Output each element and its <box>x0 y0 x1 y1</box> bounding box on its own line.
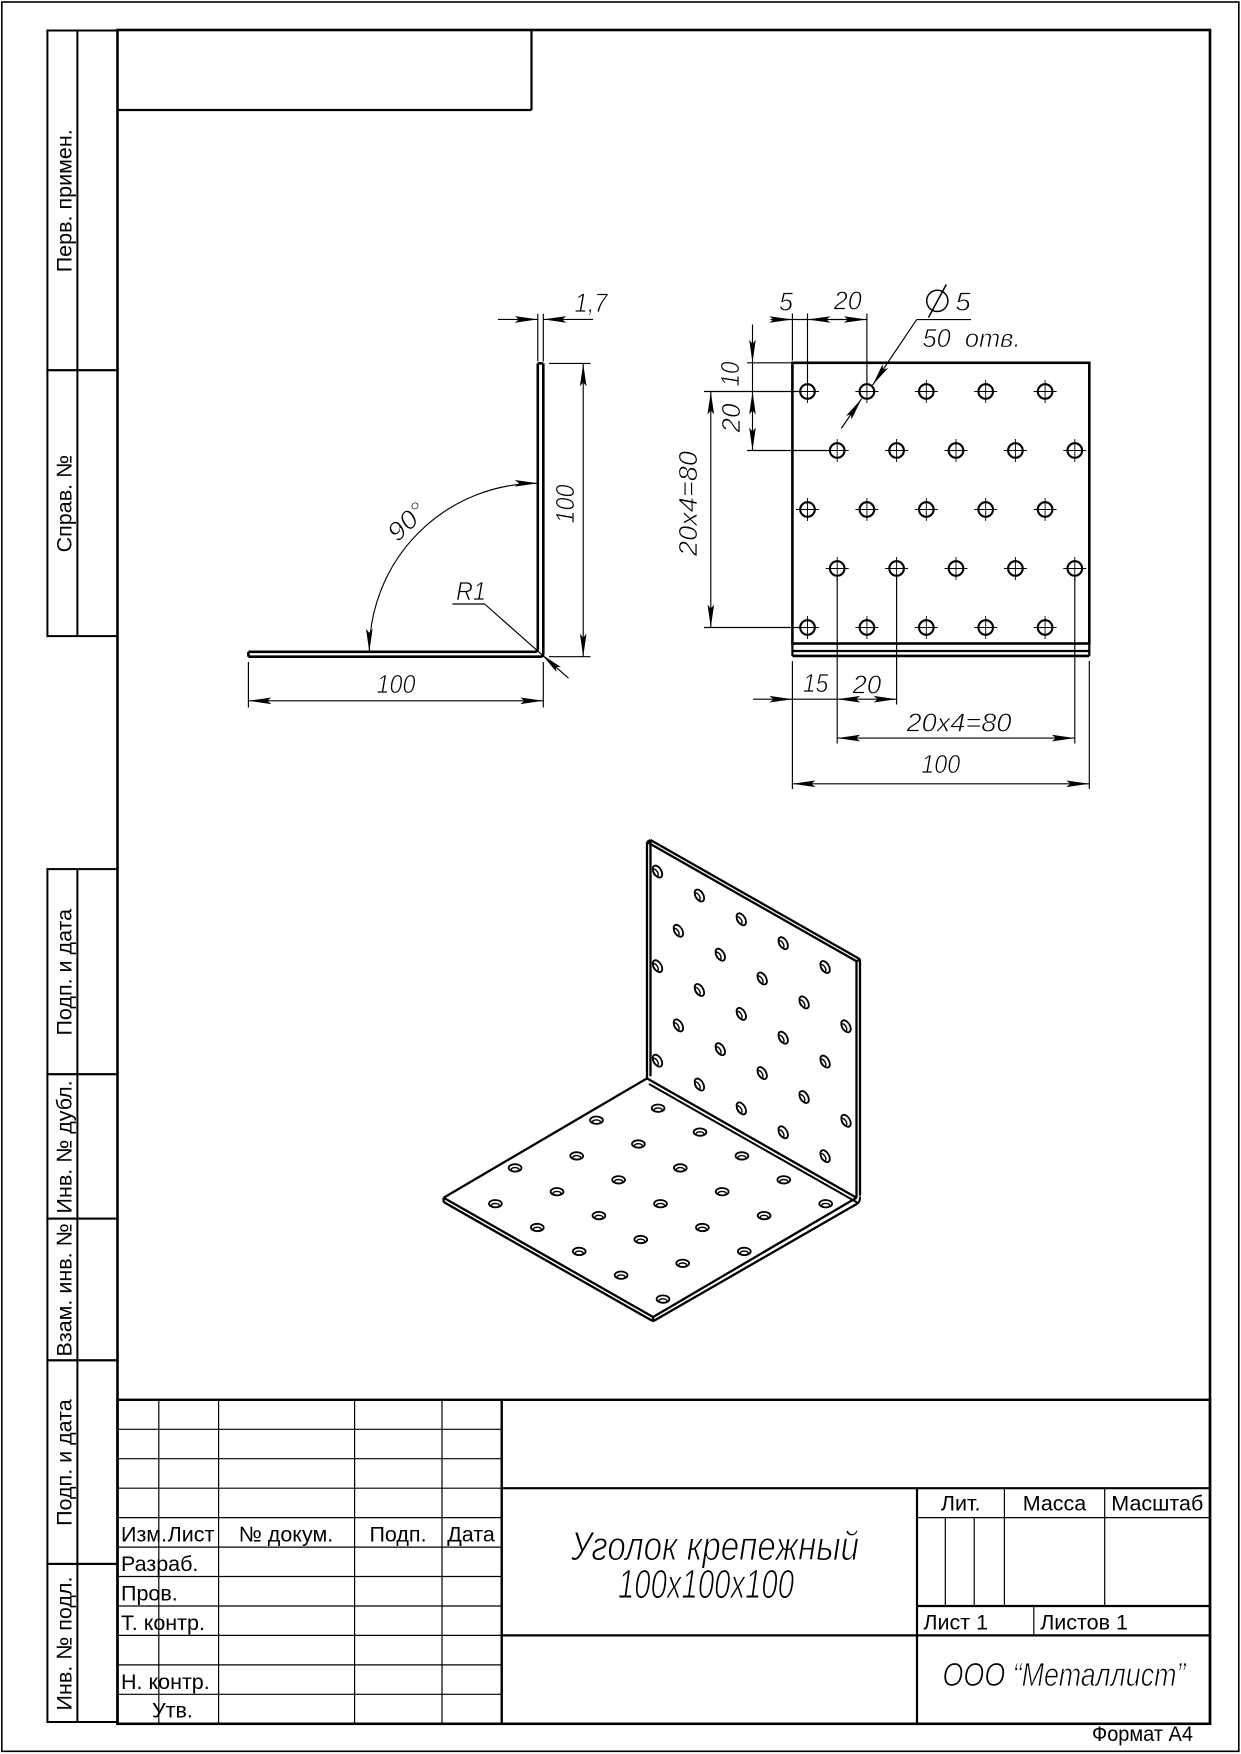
svg-text:Т. контр.: Т. контр. <box>121 1611 205 1635</box>
svg-text:1,7: 1,7 <box>575 288 609 318</box>
svg-text:Инв. № подл.: Инв. № подл. <box>53 1577 77 1711</box>
svg-text:20: 20 <box>833 286 862 316</box>
svg-text:Масштаб: Масштаб <box>1111 1492 1203 1516</box>
svg-text:Лист: Лист <box>168 1523 215 1547</box>
svg-text:ООО “Металлист”: ООО “Металлист” <box>943 1656 1188 1693</box>
svg-text:20х4=80: 20х4=80 <box>905 708 1012 738</box>
svg-text:Масса: Масса <box>1023 1492 1087 1516</box>
svg-text:Подп.: Подп. <box>369 1523 426 1547</box>
svg-text:Разраб.: Разраб. <box>121 1552 198 1576</box>
svg-text:50 отв.: 50 отв. <box>923 323 1021 353</box>
svg-text:Подп. и дата: Подп. и дата <box>53 1399 77 1526</box>
svg-text:100х100х100: 100х100х100 <box>618 1561 794 1607</box>
svg-text:Перв. примен.: Перв. примен. <box>53 129 77 272</box>
svg-text:5: 5 <box>955 287 971 317</box>
svg-text:Изм.: Изм. <box>121 1523 167 1547</box>
svg-text:Инв. № дубл.: Инв. № дубл. <box>53 1080 77 1213</box>
svg-text:Пров.: Пров. <box>121 1582 178 1606</box>
svg-text:Н. контр.: Н. контр. <box>121 1670 210 1694</box>
svg-text:Утв.: Утв. <box>152 1699 193 1723</box>
svg-text:100: 100 <box>377 669 416 699</box>
svg-text:15: 15 <box>803 668 829 698</box>
svg-text:Лит.: Лит. <box>941 1492 981 1516</box>
svg-text:Подп. и дата: Подп. и дата <box>53 909 77 1036</box>
svg-text:Взам. инв. №: Взам. инв. № <box>53 1223 77 1356</box>
svg-text:Справ. №: Справ. № <box>53 455 77 553</box>
svg-text:5: 5 <box>779 287 794 317</box>
svg-text:20: 20 <box>852 670 882 700</box>
svg-text:20х4=80: 20х4=80 <box>673 450 703 557</box>
svg-text:20: 20 <box>716 403 746 434</box>
svg-text:Листов 1: Листов 1 <box>1040 1611 1128 1635</box>
svg-text:Лист 1: Лист 1 <box>923 1611 988 1635</box>
svg-text:10: 10 <box>715 361 745 386</box>
svg-text:Формат А4: Формат А4 <box>1092 1723 1193 1746</box>
svg-text:№ докум.: № докум. <box>239 1523 333 1547</box>
svg-text:Дата: Дата <box>447 1523 495 1547</box>
svg-text:100: 100 <box>921 749 960 779</box>
svg-text:100: 100 <box>550 484 580 523</box>
svg-text:R1: R1 <box>456 576 486 606</box>
